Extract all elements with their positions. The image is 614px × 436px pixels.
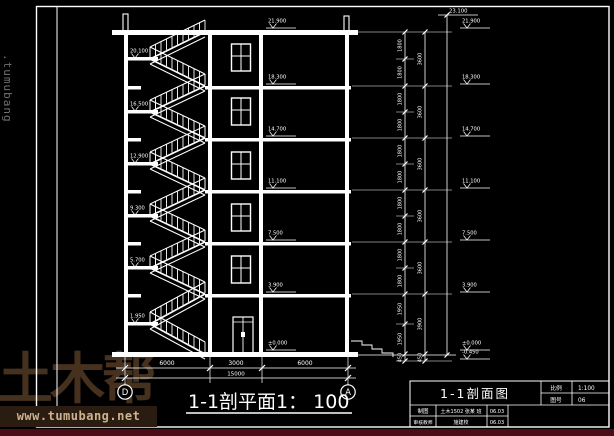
dim-label: 450 <box>398 353 404 363</box>
elevation-marker: 18.300 <box>460 75 490 85</box>
elevation-marker: ±0.000 <box>266 341 296 351</box>
elevation-label: 3.900 <box>268 283 283 289</box>
cad-sheet: 土木帮 <box>0 0 614 436</box>
floor-slab-stub <box>124 294 141 298</box>
elevation-label: 5.700 <box>130 258 145 264</box>
elevation-marker: 11.100 <box>460 179 490 189</box>
dim-label: 1800 <box>398 223 404 236</box>
elevation-label: 16.500 <box>130 102 148 108</box>
reviewer-label: 审核教师 <box>413 419 432 426</box>
title-block: 1-1剖面图 比例 1:100 图号 06 制图 土木1502 张某 班 06.… <box>410 381 609 427</box>
floor-slab <box>205 242 351 246</box>
elevation-label: 21.900 <box>268 19 286 25</box>
drawing-caption: 1-1剖平面1： 100 <box>186 391 352 413</box>
elevation-label: 11.100 <box>268 179 286 185</box>
reviewer-value: 施建校 <box>453 419 468 426</box>
elevation-marker: 14.700 <box>266 127 296 137</box>
dim-label: 3600 <box>418 106 424 119</box>
dim-label: 1800 <box>398 249 404 262</box>
drafter-value: 土木1502 张某 班 <box>441 408 482 415</box>
stair-flight <box>150 230 205 273</box>
scale-label: 比例 <box>550 384 562 392</box>
dim-label: 1800 <box>398 197 404 210</box>
dim-label: 1800 <box>398 171 404 184</box>
dim-label: 3600 <box>418 158 424 171</box>
window-icon <box>232 256 251 283</box>
elevation-label: 18.300 <box>462 75 480 81</box>
dim-label: 1950 <box>398 333 404 346</box>
dim-label: 1800 <box>398 275 404 288</box>
floor-slab <box>205 86 351 90</box>
dim-label: 1800 <box>398 119 404 132</box>
section-drawing: 6000 3000 6000 15000 D A 23.100 <box>0 0 614 436</box>
dim-segment: 6000 <box>159 360 174 367</box>
elevation-label: 14.700 <box>462 127 480 133</box>
dim-label: 1800 <box>398 66 404 79</box>
elevation-label: 14.700 <box>268 127 286 133</box>
elevation-label: 3.900 <box>462 283 477 289</box>
entrance-door <box>233 317 253 353</box>
parapet-post-right <box>344 16 349 31</box>
elevation-marker: 14.700 <box>460 127 490 137</box>
stair-flight <box>150 178 205 221</box>
dim-label: 1800 <box>398 39 404 52</box>
floor-slab-stub <box>124 242 141 246</box>
axis-letter-left: D <box>122 388 129 398</box>
stair-flight <box>150 256 205 299</box>
stair-flight <box>150 204 205 247</box>
floor-slab <box>205 190 351 194</box>
dim-total: 15000 <box>227 372 245 378</box>
elevation-marker: 18.300 <box>266 75 296 85</box>
elevation-label: -0.450 <box>462 350 479 356</box>
elevation-label: ±0.000 <box>462 341 481 347</box>
dim-label: 1800 <box>398 93 404 106</box>
dim-label: 3600 <box>418 262 424 275</box>
staircase <box>150 20 205 359</box>
floor-slab <box>205 294 351 298</box>
elevation-label: 7.500 <box>462 231 477 237</box>
dim-label: 3900 <box>418 318 424 331</box>
window-icon <box>232 44 251 71</box>
sheet-number-label: 图号 <box>550 396 562 404</box>
parapet-elevation-label: 23.100 <box>449 9 468 15</box>
elevation-label: 7.500 <box>268 231 283 237</box>
stair-flight <box>150 282 205 329</box>
elevation-marker: 7.500 <box>266 231 296 241</box>
elevation-label: 20.100 <box>130 49 148 55</box>
tumubang-url-band: www.tumubang.net <box>0 406 157 427</box>
elevation-marker: 21.900 <box>266 19 296 29</box>
parapet-post-left <box>123 14 128 31</box>
elevation-marker: 3.900 <box>460 283 490 293</box>
axis-bubble-left: D <box>118 383 132 399</box>
reviewer-date: 06.03 <box>490 420 504 426</box>
drafter-date: 06.03 <box>490 409 504 415</box>
dim-label: 3600 <box>418 210 424 223</box>
floor-slab-stub <box>124 86 141 90</box>
window-icon <box>232 204 251 231</box>
stair-flight <box>150 152 205 195</box>
titleblock-title: 1-1剖面图 <box>440 386 510 401</box>
dim-label: 1950 <box>398 303 404 316</box>
caption-text: 1-1剖平面1： 100 <box>188 391 349 413</box>
sheet-number-value: 06 <box>578 398 586 404</box>
dim-label: 450 <box>418 353 424 363</box>
stair-flight <box>150 74 205 117</box>
elevation-label: 1.950 <box>130 314 145 320</box>
elevation-marker: 11.100 <box>266 179 296 189</box>
right-dimension-chains: 23.100 180018001800180018001800180018001… <box>128 9 490 364</box>
stair-flight <box>150 47 205 91</box>
elevation-marker: 3.900 <box>266 283 296 293</box>
stair-flight <box>150 100 205 143</box>
scale-value: 1:100 <box>578 386 595 392</box>
window-icon <box>232 152 251 179</box>
floors-and-windows <box>124 44 351 326</box>
elevation-label: 18.300 <box>268 75 286 81</box>
elevation-marker: 7.500 <box>460 231 490 241</box>
elevation-label: 21.900 <box>462 19 480 25</box>
elevation-label: 12.900 <box>130 154 148 160</box>
floor-slab-stub <box>124 138 141 142</box>
stair-flight <box>150 126 205 169</box>
dim-label: 3600 <box>418 53 424 66</box>
dim-segment: 6000 <box>297 360 312 367</box>
bottom-maroon-strip <box>0 429 614 436</box>
floor-slab-stub <box>124 190 141 194</box>
drafter-label: 制图 <box>417 407 429 415</box>
elevation-label: 9.300 <box>130 206 145 212</box>
elevation-marker: -0.450 <box>460 350 490 360</box>
sheet-frame <box>37 7 610 428</box>
elevation-label: ±0.000 <box>268 341 287 347</box>
stair-flight <box>150 20 205 64</box>
floor-slab <box>205 138 351 142</box>
side-watermark-text: .tumubang <box>1 54 14 123</box>
building-section <box>112 14 456 359</box>
elevation-label: 11.100 <box>462 179 480 185</box>
window-icon <box>232 98 251 125</box>
dim-label: 1800 <box>398 145 404 158</box>
elevation-marker: 21.900 <box>460 19 490 29</box>
dim-segment: 3000 <box>228 360 243 367</box>
roof-slab <box>112 30 358 35</box>
